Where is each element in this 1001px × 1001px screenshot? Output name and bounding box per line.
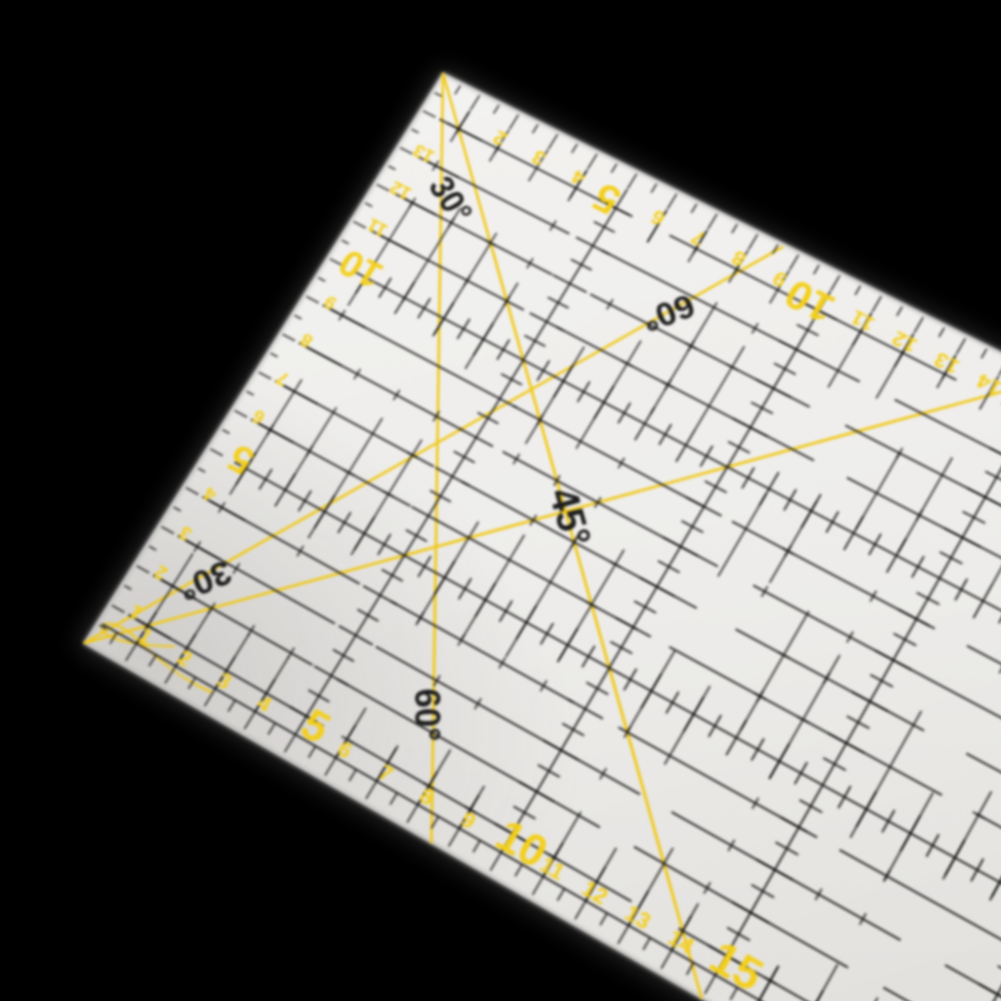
svg-text:60°: 60° bbox=[407, 688, 447, 742]
